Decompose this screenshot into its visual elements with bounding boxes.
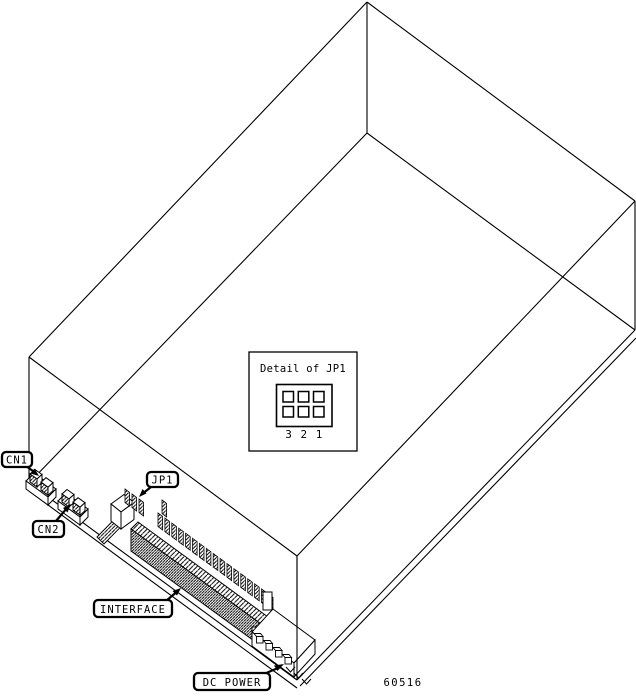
callout-cn2: CN2	[33, 504, 71, 537]
figure-number: 60516	[383, 677, 422, 689]
cn2-label: CN2	[38, 524, 60, 536]
interface-label: INTERFACE	[100, 604, 166, 616]
cn1-label: CN1	[6, 455, 28, 467]
jp1-label: JP1	[152, 475, 174, 487]
jp1-detail-inset: Detail of JP1 3 2 1	[249, 352, 357, 451]
diagram-canvas: Detail of JP1 3 2 1 CN1 CN2 JP1	[0, 0, 636, 698]
dc-power-label: DC POWER	[203, 677, 262, 689]
jumper-pin-3: 3	[285, 428, 292, 441]
enclosure-wireframe	[29, 2, 636, 688]
cn2-connector	[58, 490, 88, 526]
callout-cn1: CN1	[2, 452, 39, 476]
cn1-connector	[26, 470, 56, 506]
detail-title: Detail of JP1	[260, 363, 346, 375]
callout-jp1: JP1	[139, 472, 178, 497]
jumper-pin-1: 1	[316, 428, 323, 441]
drive-isometric-diagram: Detail of JP1 3 2 1 CN1 CN2 JP1	[0, 0, 636, 698]
jumper-pin-2: 2	[300, 428, 307, 441]
callout-interface: INTERFACE	[94, 588, 181, 617]
